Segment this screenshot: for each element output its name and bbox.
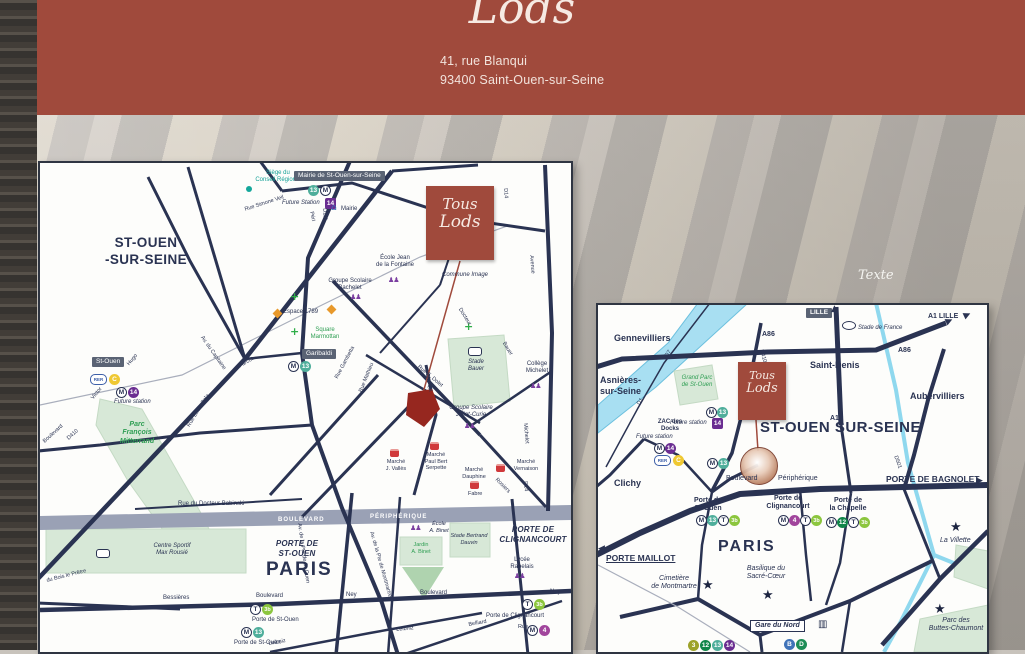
metro-4-badge: 4 [539, 625, 550, 636]
region-label: ST-OUEN -SUR-SEINE [76, 235, 216, 269]
stade-de-france-icon [842, 321, 856, 330]
metro-13-badge: 13 [308, 185, 319, 196]
road-ney-2: Ney [550, 589, 561, 596]
metro-m-badge: M [320, 185, 331, 196]
gennevilliers-label: Gennevilliers [614, 333, 671, 344]
peripherique-label: Périphérique [778, 475, 818, 483]
square-marmottan-label: Square Marmottan [298, 327, 352, 341]
metro-m-badge: M [116, 387, 127, 398]
tram-t-badge: T [848, 517, 859, 528]
espace-1789-label: Espace 1789 [283, 309, 318, 316]
metro-4-badge: 4 [789, 515, 800, 526]
road-d111: D111 [320, 208, 328, 221]
arrow-left-icon: ◀ [598, 545, 605, 554]
metro-m-badge: M [654, 443, 665, 454]
a1-label: A1 [830, 415, 839, 423]
road-fabre: Fabre [468, 491, 482, 498]
metro-m-badge: M [706, 407, 717, 418]
landmark-star-icon: ★ [950, 521, 962, 534]
metro-13-badge: 13 [253, 627, 264, 638]
tram-t-badge: T [522, 599, 533, 610]
market-icon [470, 481, 479, 489]
road-ney-1: Ney [346, 592, 357, 599]
rer-badge: RER [90, 374, 107, 385]
tram-t-badge: T [800, 515, 811, 526]
rer-c-badge: C [109, 374, 120, 385]
tram-3b-badge: 3b [534, 599, 545, 610]
tram-3b-badge: 3b [811, 515, 822, 526]
tram-t-badge: T [250, 604, 261, 615]
metro-14-badge: 14 [128, 387, 139, 398]
metro-14-badge: 14 [712, 418, 723, 429]
sacre-coeur-label: Basilique du Sacré-Cœur [740, 565, 792, 582]
porte-bagnolet-label: PORTE DE BAGNOLET [886, 474, 980, 484]
school-icon: ♟♟ [514, 573, 525, 580]
porte-clignancourt-label: PORTE DE CLIGNANCOURT [496, 525, 570, 544]
rer-badge: RER [654, 455, 671, 466]
metro-m-badge: M [527, 625, 538, 636]
gare-du-nord-label: Gare du Nord [750, 620, 805, 632]
arrow-right-icon: ▶ [976, 477, 983, 486]
brand-logo: Tous Lods [437, 0, 607, 32]
road-boulevard-1: Boulevard [256, 593, 283, 600]
metro-13-badge: 13 [717, 407, 728, 418]
porte-clignancourt-label: Porte de Clignancourt [486, 613, 544, 620]
ecole-fontaine-label: École Jean de la Fontaine [364, 255, 426, 269]
cimetiere-montmartre-label: Cimetière de Montmartre [646, 575, 702, 592]
road-babinski: Rue du Docteur Babinski [178, 501, 244, 508]
poi-dot [246, 186, 252, 192]
porte-st-ouen-tram-label: Porte de St-Ouen [252, 617, 299, 624]
landmark-star-icon: ★ [762, 589, 774, 602]
aubervilliers-label: Aubervilliers [910, 391, 965, 402]
paris-label: PARIS [718, 537, 776, 556]
rer-c-badge: C [673, 455, 684, 466]
commune-image-label: Commune Image [442, 272, 488, 279]
metro-m-badge: M [241, 627, 252, 638]
school-icon: ♟♟ [530, 383, 541, 390]
boulevard-label: Boulevard [726, 475, 758, 483]
road-d14-south: D14 [521, 481, 528, 492]
school-icon: ♟♟ [350, 294, 361, 301]
stade-bauer-label: Stade Bauer [460, 359, 492, 373]
school-icon: ♟♟ [388, 277, 399, 284]
train-station-icon: ▥ [818, 620, 827, 630]
facade-photo-strip [0, 0, 37, 650]
market-icon [496, 464, 505, 472]
stadium-icon [468, 347, 482, 356]
tram-3b-badge: 3b [859, 517, 870, 528]
pharmacy-icon: + [290, 291, 299, 302]
metro-m-badge: M [778, 515, 789, 526]
stadium-icon [96, 549, 110, 558]
metro-13-badge: 13 [718, 458, 729, 469]
road-d14-north: D14 [501, 188, 508, 199]
arrow-up-icon: ▲ [831, 305, 838, 314]
metro-12-badge: 12 [837, 517, 848, 528]
landmark-star-icon: ★ [934, 603, 946, 616]
asnieres-label: Asnières- sur-Seine [600, 375, 641, 397]
clichy-label: Clichy [614, 478, 641, 489]
metro-m-badge: M [707, 458, 718, 469]
property-address: 41, rue Blanqui 93400 Saint-Ouen-sur-Sei… [440, 52, 604, 90]
metro-14-badge: 14 [665, 443, 676, 454]
lille-direction-tag: LILLE [806, 308, 832, 318]
paris-label: PARIS [266, 559, 333, 582]
page-header: Tous Lods 41, rue Blanqui 93400 Saint-Ou… [37, 0, 1025, 115]
rer-b-badge: B [784, 639, 795, 650]
marche-dauphine-label: Marché Dauphine [452, 467, 496, 480]
college-michelet-label: Collège Michelet [514, 361, 560, 375]
metro-m-badge: M [826, 517, 837, 528]
a86-label-west: A86 [762, 331, 775, 339]
marche-vernaison-label: Marché Vernaison [506, 459, 546, 472]
tous-lods-logo-line1: Tous [426, 196, 494, 213]
market-icon [390, 449, 399, 457]
periph-band-text2: PÉRIPHÉRIQUE [370, 514, 427, 521]
tous-lods-logo-callout: Tous Lods [738, 362, 786, 420]
metro-12-badge: 12 [700, 640, 711, 651]
metro-3-badge: 3 [688, 640, 699, 651]
tram-3b-badge: 3b [729, 515, 740, 526]
school-icon: ♟♟ [410, 525, 421, 532]
road-rue: Rue [518, 624, 528, 631]
brand-logo-line2: Lods [437, 0, 607, 32]
road-bessieres: Bessières [163, 595, 189, 602]
road-boulevard-2: Boulevard [420, 590, 447, 597]
school-icon: ♟♟ [464, 423, 475, 430]
a86-label-east: A86 [898, 347, 911, 355]
future-station-label: Future station [114, 399, 151, 406]
jardin-binet-label: Jardin A. Binet [402, 542, 440, 555]
porte-maillot-label: PORTE MAILLOT [606, 553, 675, 563]
tous-lods-logo-callout: Tous Lods [426, 186, 494, 260]
future-station-label: Future station [636, 434, 673, 441]
porte-st-ouen-label: Porte de St-Ouen [688, 497, 728, 514]
lycee-rabelais-label: Lycée Rabelais [502, 557, 542, 571]
stade-dauvin-label: Stade Bertrand Dauvin [444, 533, 494, 546]
pharmacy-icon: + [290, 326, 299, 337]
rer-d-badge: D [796, 639, 807, 650]
grand-parc-label: Grand Parc de St-Ouen [676, 375, 718, 389]
porte-la-chapelle-label: Porte de la Chapelle [824, 497, 872, 514]
metro-m-badge: M [696, 515, 707, 526]
tous-lods-logo-line2: Lods [738, 382, 786, 396]
centre-sportif-label: Centre Sportif Max Rousié [140, 543, 204, 557]
mairie-label: Mairie [341, 206, 357, 213]
garibaldi-station-tag: Garibaldi [302, 349, 336, 359]
marche-valles-label: Marché J. Vallès [376, 459, 416, 472]
landmark-star-icon: ★ [702, 579, 714, 592]
metro-m-badge: M [288, 361, 299, 372]
tous-lods-logo-line2: Lods [426, 213, 494, 232]
metro-14-badge: 14 [724, 640, 735, 651]
metro-13-badge: 13 [712, 640, 723, 651]
st-ouen-sur-seine-big-label: ST-OUEN SUR-SEINE [760, 419, 921, 437]
metro-13-badge: 13 [300, 361, 311, 372]
porte-clignancourt-label: Porte de Clignancourt [760, 495, 816, 512]
mairie-house-icon: ⌂ [331, 204, 337, 213]
buttes-chaumont-label: Parc des Buttes-Chaumont [928, 617, 984, 634]
mairie-station-tag: Mairie de St-Ouen-sur-Seine [294, 171, 385, 181]
groupe-scolaire-bachelet-label: Groupe Scolaire Bachelet [318, 278, 382, 292]
detail-map: ST-OUEN -SUR-SEINE PORTE DE ST-OUEN PARI… [38, 161, 573, 654]
market-icon [430, 442, 439, 450]
metro-13-badge: 13 [707, 515, 718, 526]
st-ouen-station-tag: St-Ouen [92, 357, 124, 367]
photo-placeholder-text: Texte [858, 268, 894, 283]
future-station-label: Future Station [282, 200, 320, 207]
stade-de-france-label: Stade de France [858, 325, 902, 332]
saint-denis-label: Saint-Denis [810, 360, 860, 371]
tram-t-badge: T [718, 515, 729, 526]
groupe-joliot-curie-label: Groupe Scolaire Joliot-Curie [438, 405, 504, 419]
future-station-label: Future station [670, 420, 707, 427]
parc-mitterrand-label: Parc François Mitterrand [106, 421, 168, 446]
area-map: Gennevilliers Asnières- sur-Seine Clichy… [596, 303, 989, 654]
tram-3b-badge: 3b [262, 604, 273, 615]
la-villette-label: La Villette [940, 537, 971, 545]
